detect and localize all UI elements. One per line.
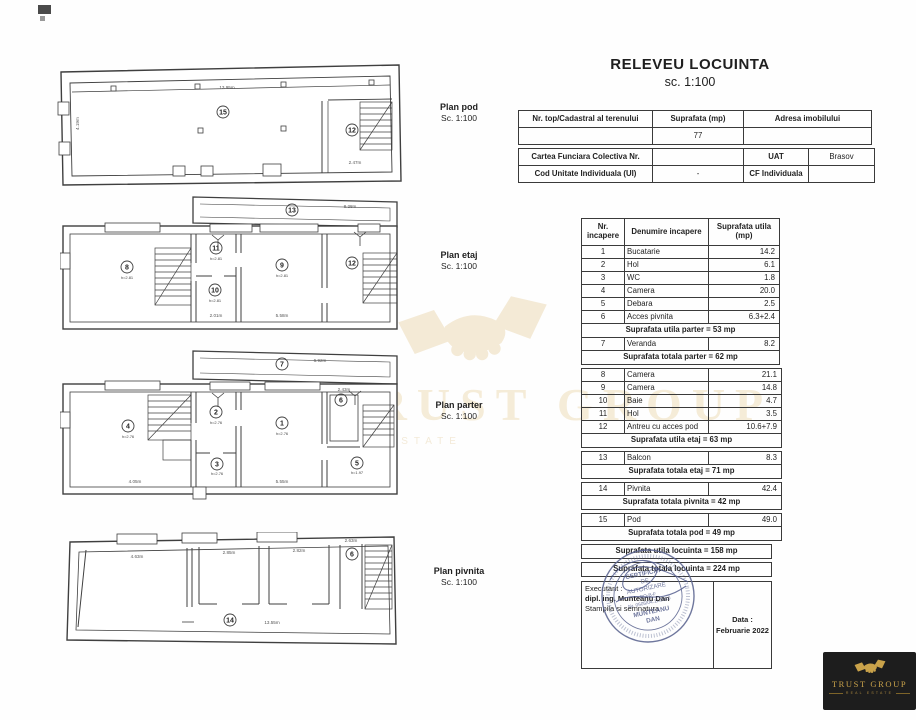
info-value-cf-individuala [809, 166, 875, 183]
info-value-uat: Brasov [809, 149, 875, 166]
logo-title: TRUST GROUP [832, 679, 907, 689]
col-header-nr: Nr. incapere [582, 219, 625, 246]
dimension-label: 5.55m [276, 479, 289, 484]
dimension-label: 2.47m [349, 160, 362, 165]
room-number: 6 [350, 552, 354, 559]
summary-row: Suprafata utila parter = 53 mp [582, 324, 780, 338]
summary-row: Suprafata totala pivnita = 42 mp [582, 496, 782, 510]
table-row: 13Balcon8.3 [582, 452, 782, 465]
table-row: 11Hol3.5 [582, 408, 782, 421]
watermark-handshake-icon [390, 282, 555, 382]
room-number: 12 [348, 261, 356, 268]
height-label: h=2.76 [211, 471, 224, 476]
room-number: 13 [288, 208, 296, 215]
document-title-block: RELEVEU LOCUINTA sc. 1:100 [515, 56, 865, 89]
table-row: 15Pod49.0 [582, 514, 782, 527]
floor-plan-parter: 7 4 2 3 1 6 5 h=2.76 h=2.76 h=2.76 h=2.7… [60, 348, 400, 500]
stamp-line: DAN [646, 615, 661, 625]
dimension-label: 4.05m [129, 479, 142, 484]
dimension-label: 2.82m [293, 548, 306, 553]
room-number: 5 [355, 461, 359, 468]
info-value-cod-ui: - [653, 166, 744, 183]
floor-plan-pod: 15 12 13.95m 4.19m 2.47m [55, 60, 405, 188]
info-label-cod-ui: Cod Unitate Individuala (UI) [519, 166, 653, 183]
plan-pod-caption: Plan pod Sc. 1:100 [420, 102, 498, 124]
trust-group-logo: TRUST GROUP REAL ESTATE [823, 652, 916, 710]
certification-stamp: CERTIFICAT DE AUTORIZARE RO-B-F Nr. 0505… [598, 546, 698, 646]
table-row: 10Baie4.7 [582, 395, 782, 408]
room-number: 15 [219, 110, 227, 117]
height-label: h=2.81 [276, 273, 289, 278]
table-row: 7Veranda8.2 [582, 338, 780, 351]
dimension-label: 4.63m [131, 554, 144, 559]
height-label: h=1.97 [351, 470, 364, 475]
scan-artifact [38, 5, 51, 14]
table-row: 12Antreu cu acces pod10.6+7.9 [582, 421, 782, 434]
room-number: 4 [126, 424, 130, 431]
scan-artifact [40, 16, 45, 21]
room-number: 10 [211, 288, 219, 295]
dimension-label: 4.19m [75, 117, 80, 130]
summary-row: Suprafata totala etaj = 71 mp [582, 465, 782, 479]
info-cell-empty [653, 149, 744, 166]
table-row: 14Pivnita42.4 [582, 483, 782, 496]
room-number: 12 [348, 128, 356, 135]
plan-pivnita-caption: Plan pivnita Sc. 1:100 [420, 566, 498, 588]
table-header-row: Nr. incapere Denumire incapere Suprafata… [582, 219, 780, 246]
table-row: 1Bucatarie14.2 [582, 246, 780, 259]
table-row: Nr. top/Cadastral al terenului Suprafata… [519, 111, 872, 128]
table-row: 5Debara2.5 [582, 298, 780, 311]
dimension-label: 13.55m [264, 620, 279, 625]
logo-subtitle: REAL ESTATE [829, 691, 910, 695]
height-label: h=2.81 [121, 275, 134, 280]
room-number: 7 [280, 362, 284, 369]
date-cell: Data : Februarie 2022 [714, 582, 771, 668]
info-cell-empty [744, 128, 872, 145]
floor-plan-etaj: 13 8 11 10 9 12 h=2.81 h=2.81 h=2.81 h=2… [60, 193, 400, 335]
info-value-suprafata: 77 [653, 128, 744, 145]
table-row: 9Camera14.8 [582, 382, 782, 395]
room-number: 9 [280, 263, 284, 270]
table-row: 6Acces pivnita6.3+2.4 [582, 311, 780, 324]
table-row: 8Camera21.1 [582, 369, 782, 382]
col-header-denumire: Denumire incapere [625, 219, 709, 246]
summary-row: Suprafata totala parter = 62 mp [582, 351, 780, 365]
room-number: 6 [339, 398, 343, 405]
info-label-cf-individuala: CF Individuala [744, 166, 809, 183]
table-row: Cartea Funciara Colectiva Nr. UAT Brasov [519, 149, 875, 166]
dimension-label: 2.01m [210, 313, 223, 318]
height-label: h=2.81 [209, 298, 222, 303]
info-header-cadastral: Nr. top/Cadastral al terenului [519, 111, 653, 128]
room-number: 11 [212, 246, 220, 253]
scanned-document-page: TRUST GROUP REAL ESTATE RELEVEU LOCUINTA… [0, 0, 916, 720]
height-label: h=2.81 [210, 256, 223, 261]
logo-handshake-icon [852, 657, 888, 677]
height-label: h=2.76 [276, 431, 289, 436]
date-label: Data : [732, 614, 753, 625]
room-number: 1 [280, 421, 284, 428]
dimension-label: 2.43m [338, 387, 351, 392]
plan-etaj-caption: Plan etaj Sc. 1:100 [420, 250, 498, 272]
room-number: 2 [214, 410, 218, 417]
table-row: 3WC1.8 [582, 272, 780, 285]
summary-row: Suprafata totala pod = 49 mp [582, 527, 782, 541]
table-row: 77 [519, 128, 872, 145]
room-number: 14 [226, 618, 234, 625]
table-row: Cod Unitate Individuala (UI) - CF Indivi… [519, 166, 875, 183]
height-label: h=2.76 [210, 420, 223, 425]
dimension-label: 5.58m [276, 313, 289, 318]
page-title: RELEVEU LOCUINTA [515, 56, 865, 73]
date-value: Februarie 2022 [716, 625, 769, 636]
info-cell-empty [519, 128, 653, 145]
summary-row: Suprafata utila etaj = 63 mp [582, 434, 782, 448]
plan-parter-caption: Plan parter Sc. 1:100 [420, 400, 498, 422]
info-header-suprafata: Suprafata (mp) [653, 111, 744, 128]
info-label-cf-colectiva: Cartea Funciara Colectiva Nr. [519, 149, 653, 166]
info-header-adresa: Adresa imobilului [744, 111, 872, 128]
col-header-suprafata: Suprafata utila (mp) [709, 219, 780, 246]
cadastral-info-table: Nr. top/Cadastral al terenului Suprafata… [518, 110, 875, 183]
dimension-label: 6.92m [314, 358, 327, 363]
dimension-label: 2.63m [345, 538, 358, 543]
dimension-label: 13.95m [219, 85, 234, 90]
page-scale: sc. 1:100 [515, 75, 865, 89]
height-label: h=2.76 [122, 434, 135, 439]
dimension-label: 8.28m [344, 204, 357, 209]
table-row: 2Hol6.1 [582, 259, 780, 272]
room-number: 3 [215, 462, 219, 469]
dimension-label: 2.85m [223, 550, 236, 555]
floor-plan-pivnita: 14 6 4.63m 2.85m 2.82m 2.63m 13.55m [62, 532, 402, 656]
room-number: 8 [125, 265, 129, 272]
table-row: 4Camera20.0 [582, 285, 780, 298]
info-label-uat: UAT [744, 149, 809, 166]
